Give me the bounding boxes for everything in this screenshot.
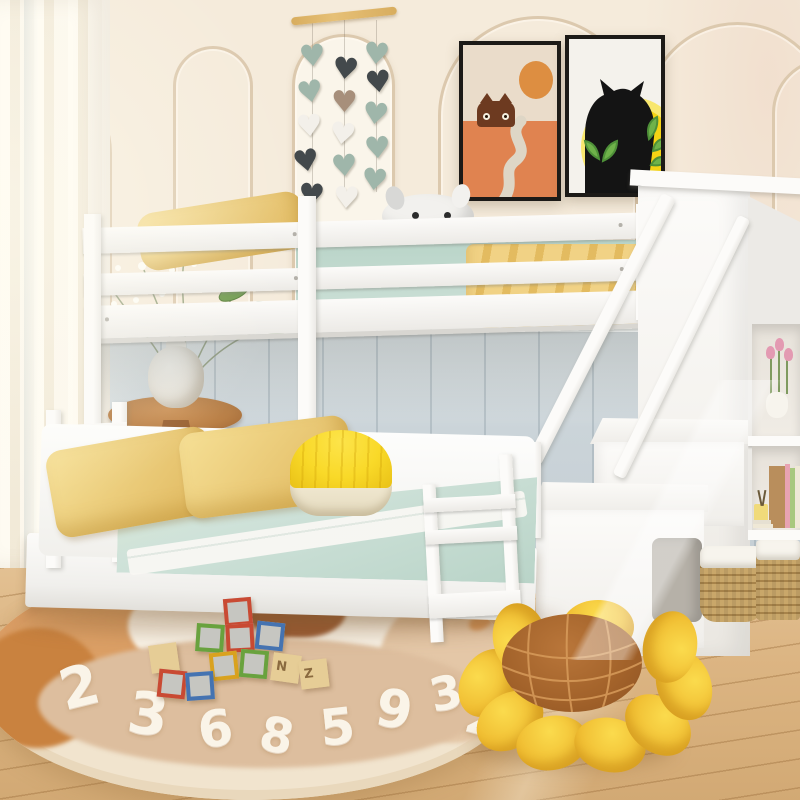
heart-ornament-icon: ♥	[364, 67, 394, 100]
heart-ornament-icon: ♥	[363, 133, 391, 164]
cat-ear-icon	[480, 93, 494, 103]
toy-block-letter: N	[270, 652, 302, 684]
toy-block	[255, 621, 286, 652]
poster-sun	[519, 61, 553, 99]
block-letter: Z	[303, 664, 315, 685]
toy-block	[185, 671, 215, 701]
window-glow-overlay	[0, 0, 340, 560]
toy-blocks: N Z	[150, 592, 340, 712]
toy-block	[157, 669, 188, 700]
heart-ornament-icon: ♥	[360, 98, 390, 131]
tulip-flower	[766, 346, 775, 359]
block-letter: N	[275, 657, 289, 678]
poster-cat-desert	[459, 41, 561, 201]
poster-winding-path	[463, 115, 561, 201]
cat-ear-icon	[498, 93, 512, 103]
toy-block	[225, 623, 254, 652]
tulip-flower	[775, 338, 784, 351]
light-band	[520, 380, 800, 660]
tulip-flower	[784, 348, 793, 361]
cat-eye-icon	[502, 113, 509, 120]
toy-block-letter: Z	[298, 658, 329, 689]
poster-cat-head	[477, 101, 515, 127]
cat-eye-icon	[483, 113, 490, 120]
toy-block	[195, 623, 225, 653]
bedroom-product-photo: ♥ ♥ ♥ ♥ ♥ ♥ ♥ ♥ ♥ ♥ ♥ ♥ ♥ ♥ ♥	[0, 0, 800, 800]
toy-block	[239, 649, 269, 679]
